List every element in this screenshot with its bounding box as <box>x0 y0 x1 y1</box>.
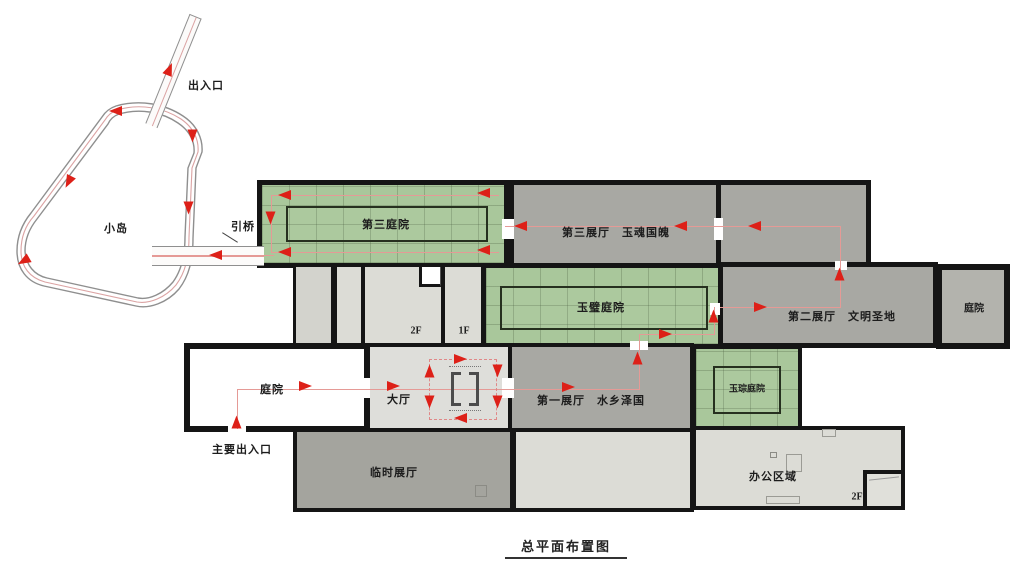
floor-plan: 小岛 出入口 引桥 主要出入口 <box>0 0 1024 575</box>
flow-arrow-icon <box>477 245 490 255</box>
room-first-hall <box>508 343 694 432</box>
island-label: 小岛 <box>104 220 128 236</box>
flow-arrow-icon <box>674 221 687 231</box>
room-office-area <box>692 426 905 510</box>
second-hall-label: 第二展厅 文明圣地 <box>788 308 896 324</box>
flow-arrow-icon <box>278 247 291 257</box>
flow-arrow-icon <box>454 413 467 423</box>
flow-arrow-icon <box>454 354 467 364</box>
temporary-hall-label: 临时展厅 <box>370 464 418 480</box>
approach-bridge <box>152 246 264 266</box>
third-courtyard-label: 第三庭院 <box>362 216 410 232</box>
flow-arrow-icon <box>562 382 575 392</box>
flow-arrow-icon <box>633 352 643 365</box>
flow-arrow-icon <box>425 365 435 378</box>
flow-arrow-icon <box>299 381 312 391</box>
main-entrance-label: 主要出入口 <box>212 441 272 457</box>
third-hall-label: 第三展厅 玉魂国魄 <box>562 224 670 240</box>
bridge-label: 引桥 <box>231 218 255 234</box>
flow-arrow-icon <box>387 381 400 391</box>
island-loop-path <box>0 0 310 340</box>
room-upper-east-hall <box>716 180 871 268</box>
flow-arrow-icon <box>748 221 761 231</box>
west-courtyard-label: 庭院 <box>260 381 284 397</box>
drawing-title: 总平面布置图 <box>505 536 627 556</box>
flow-arrow-icon <box>266 212 276 225</box>
flow-arrow-icon <box>209 250 222 260</box>
flow-arrow-icon <box>188 130 198 143</box>
lobby-stair-right-bracket <box>469 372 479 406</box>
flow-arrow-icon <box>514 221 527 231</box>
flow-arrow-icon <box>425 396 435 409</box>
mid-1f-label: 1F <box>458 326 469 337</box>
jade-cong-courtyard-label: 玉琮庭院 <box>729 382 765 395</box>
flow-arrow-icon <box>835 268 845 281</box>
flow-arrow-icon <box>659 329 672 339</box>
office-2f-label: 2F <box>851 492 862 503</box>
lobby-stair-left-bracket <box>451 372 461 406</box>
flow-arrow-icon <box>493 396 503 409</box>
office-area-label: 办公区域 <box>749 468 797 484</box>
office-2f-room <box>863 470 905 510</box>
flow-arrow-icon <box>184 202 194 215</box>
room-service-hall <box>512 428 694 512</box>
flow-arrow-icon <box>278 190 291 200</box>
site-entrance-label: 出入口 <box>188 77 224 93</box>
flow-arrow-icon <box>477 188 490 198</box>
flow-arrow-icon <box>709 310 719 323</box>
flow-arrow-icon <box>754 302 767 312</box>
stair-notch <box>419 267 441 287</box>
flow-arrow-icon <box>493 365 503 378</box>
flow-arrow-icon <box>109 106 122 116</box>
room-second-hall <box>718 262 938 348</box>
flow-arrow-icon <box>232 416 242 429</box>
first-hall-label: 第一展厅 水乡泽国 <box>537 392 645 408</box>
jade-bi-courtyard-label: 玉璧庭院 <box>577 299 625 315</box>
lobby-label: 大厅 <box>387 391 411 407</box>
room-small-mid <box>334 264 364 348</box>
east-courtyard-label: 庭院 <box>964 300 984 315</box>
mid-2f-label: 2F <box>410 326 421 337</box>
